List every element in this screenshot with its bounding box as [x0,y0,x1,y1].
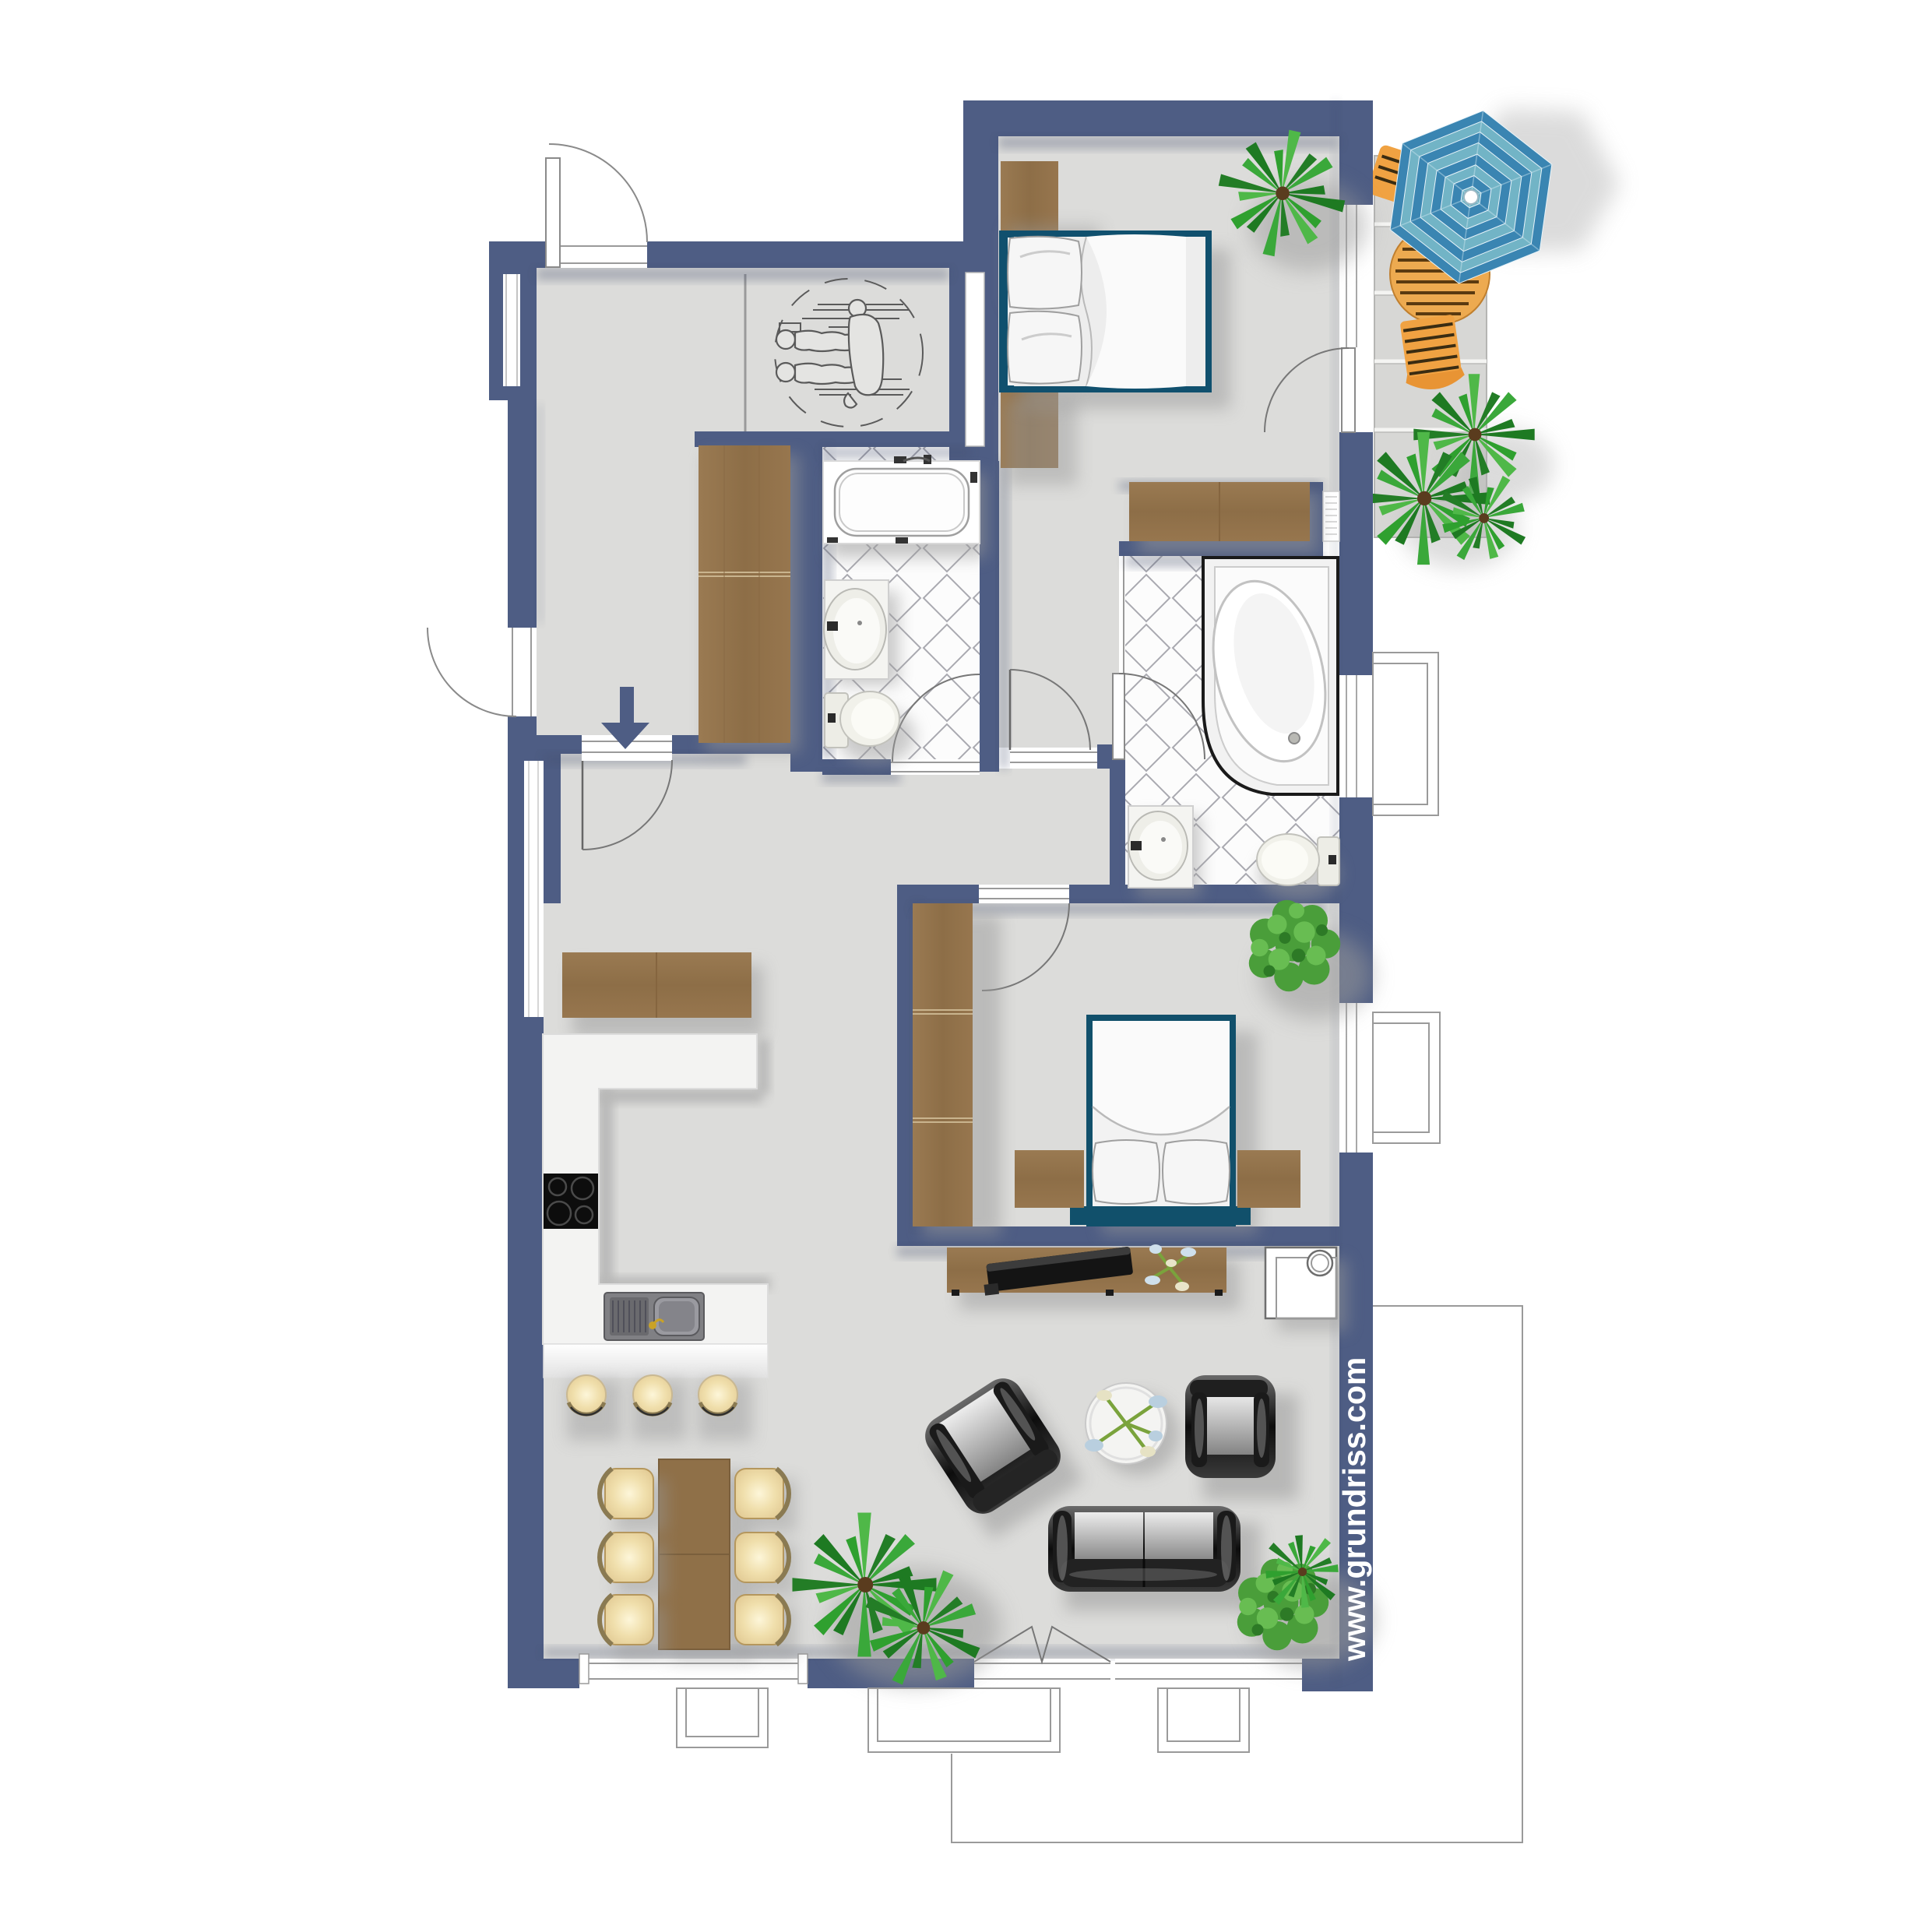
svg-text:www.grundriss.com: www.grundriss.com [1336,1357,1372,1662]
